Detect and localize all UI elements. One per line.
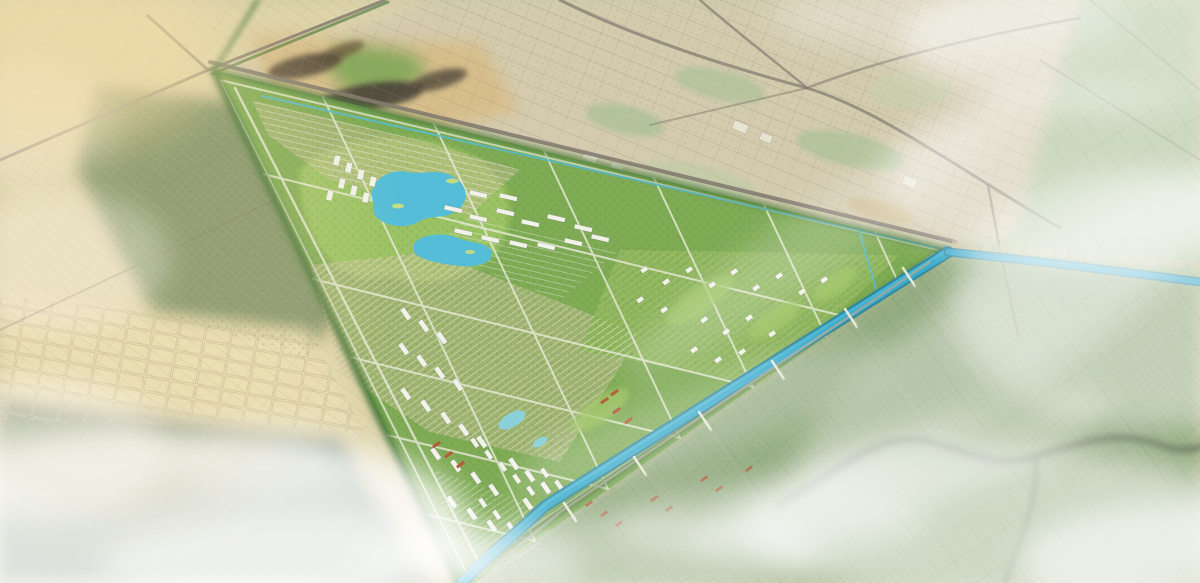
atmospheric-veil bbox=[0, 0, 1200, 583]
aerial-masterplan-render bbox=[0, 0, 1200, 583]
scene-canvas bbox=[0, 0, 1200, 583]
